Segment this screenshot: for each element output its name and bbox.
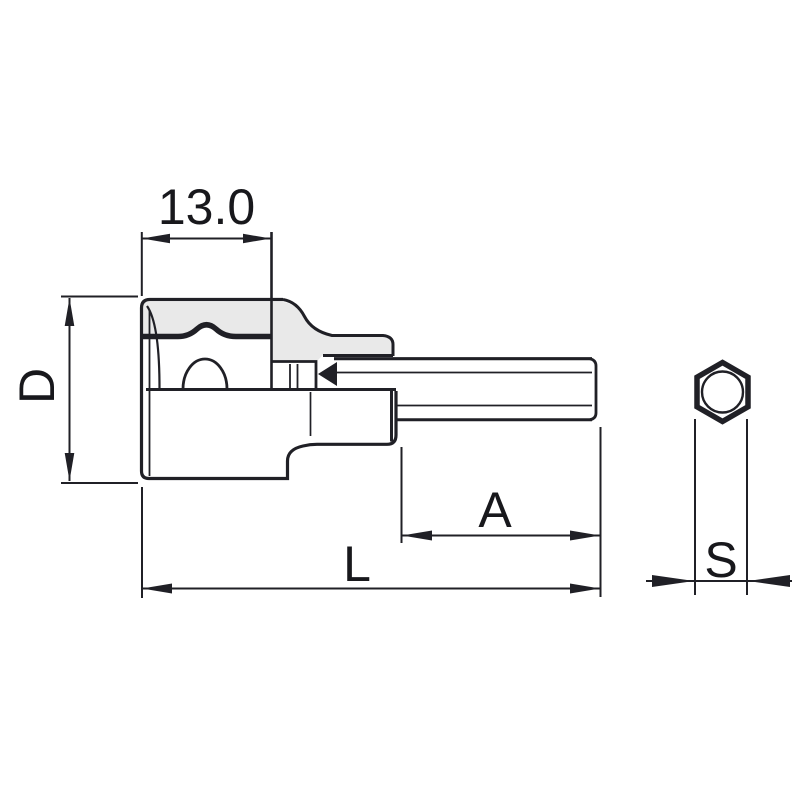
arrowhead-inward-right [652, 575, 694, 587]
bit-pocket-step [272, 362, 316, 390]
bit-shaft-end-face [590, 359, 596, 420]
bit-protrusion-label: A [478, 482, 512, 538]
dimension-drive-depth: 13.0 [142, 179, 271, 296]
technical-drawing: 13.0 D A L S [0, 0, 800, 800]
bit-tip-chamfer [318, 362, 337, 386]
dimension-body-diameter: D [9, 297, 138, 484]
detent-ball-arc [183, 359, 227, 389]
arrowhead-left [402, 531, 432, 541]
arrowhead-left [142, 234, 170, 243]
arrowhead-right [243, 234, 271, 243]
hex-end-view: S [646, 363, 792, 596]
overall-length-label: L [343, 536, 371, 592]
clip-groove [290, 364, 298, 388]
inscribed-circle [702, 372, 743, 413]
dimension-overall-length: L [142, 427, 601, 598]
section-shading [143, 302, 393, 361]
arrowhead-right [570, 531, 600, 541]
drawing-canvas: 13.0 D A L S [0, 0, 800, 800]
arrowhead-left [142, 584, 172, 594]
arrowhead-right [570, 584, 600, 594]
dimension-bit-protrusion: A [402, 447, 601, 543]
drive-depth-label: 13.0 [158, 179, 255, 235]
hex-width-label: S [704, 532, 737, 588]
nose-section-shade [272, 302, 393, 361]
socket-side-view [142, 232, 597, 479]
arrowhead-down [65, 453, 75, 481]
body-diameter-label: D [9, 368, 65, 404]
arrowhead-inward-left [748, 575, 790, 587]
arrowhead-up [65, 298, 75, 326]
